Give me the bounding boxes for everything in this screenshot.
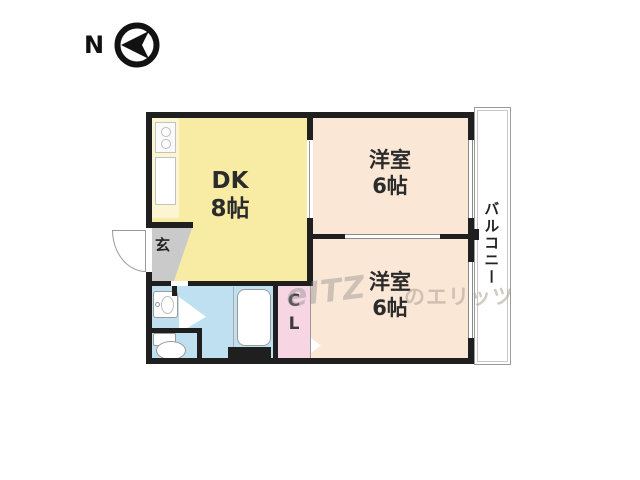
wall-wet-top-left <box>146 281 171 286</box>
divider-sliding-door <box>345 234 440 239</box>
wall-closet-left <box>273 286 278 358</box>
wall-dk-top-stub <box>307 112 313 140</box>
window-bottom-room <box>468 262 473 338</box>
compass: N <box>84 22 164 70</box>
dk-room-opening-line <box>309 141 310 218</box>
balcony-label: バルコニー <box>482 173 500 313</box>
western-top-room-name: 洋室 <box>325 148 455 174</box>
wall-toilet-h <box>146 328 202 333</box>
wall-toilet-v <box>197 333 202 358</box>
closet-label-c: C <box>285 290 303 313</box>
bathtub-icon <box>237 289 271 346</box>
wall-bottom <box>146 358 474 364</box>
closet-label-l: L <box>285 313 303 336</box>
entrance-door-icon <box>112 230 146 272</box>
closet-label: C L <box>285 290 303 336</box>
wall-wet-top-right <box>188 281 310 286</box>
wall-divider-right <box>440 234 468 239</box>
wall-dk-lower <box>307 234 313 286</box>
compass-north-label: N <box>84 31 104 60</box>
wall-divider-left <box>307 234 345 239</box>
wall-right-seg3 <box>468 338 474 364</box>
western-bottom-room-label: 洋室 6帖 <box>325 270 455 321</box>
western-top-room-size: 6帖 <box>325 174 455 200</box>
compass-west-arrow-icon <box>114 22 160 72</box>
dk-room-name: DK <box>165 167 295 195</box>
closet-room-line <box>310 286 311 358</box>
stove-icon <box>155 122 176 153</box>
wall-right-stub-balcony <box>474 229 479 240</box>
wall-right-seg2 <box>468 218 474 262</box>
wall-right-seg1 <box>468 112 474 140</box>
window-top-room <box>468 140 473 218</box>
entrance-label: 玄 <box>155 236 170 254</box>
western-bottom-room-size: 6帖 <box>325 296 455 322</box>
western-bottom-room-name: 洋室 <box>325 270 455 296</box>
wall-left-upper <box>146 112 152 228</box>
bath-platform-line <box>233 287 234 347</box>
western-top-room-label: 洋室 6帖 <box>325 148 455 199</box>
dk-room-label: DK 8帖 <box>165 167 295 223</box>
dk-room-size: 8帖 <box>165 195 295 223</box>
wall-bath-stub <box>172 286 177 296</box>
